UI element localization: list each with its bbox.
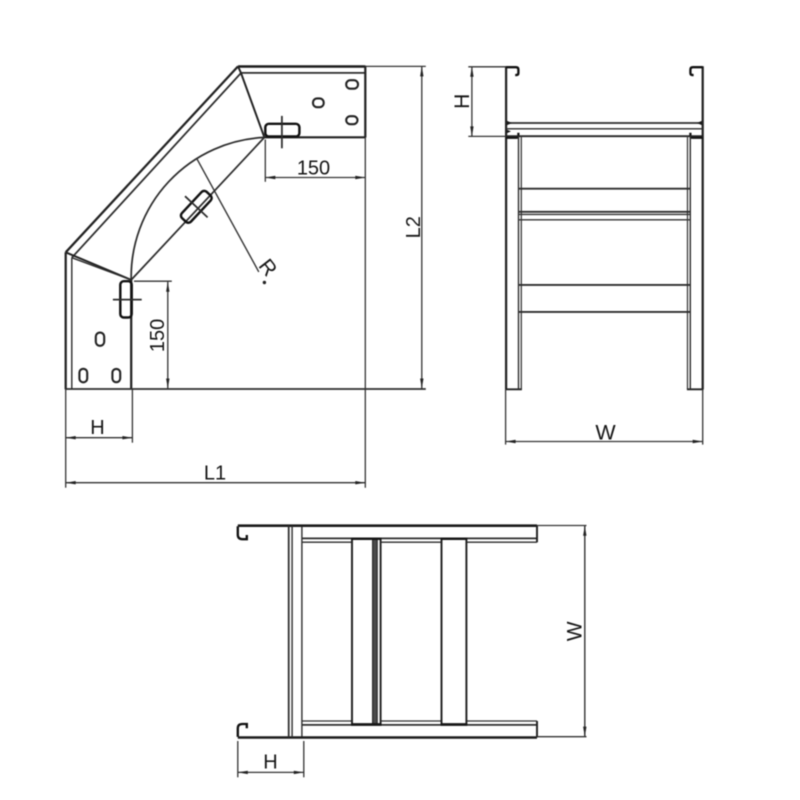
svg-text:H: H	[90, 417, 104, 439]
svg-text:H: H	[451, 94, 474, 109]
svg-text:150: 150	[297, 158, 330, 180]
svg-text:150: 150	[147, 319, 169, 352]
svg-text:W: W	[564, 621, 587, 641]
svg-text:L2: L2	[403, 216, 425, 238]
svg-text:H: H	[263, 752, 277, 774]
svg-text:R: R	[254, 255, 281, 281]
svg-text:L1: L1	[204, 463, 226, 485]
svg-text:W: W	[595, 420, 616, 444]
